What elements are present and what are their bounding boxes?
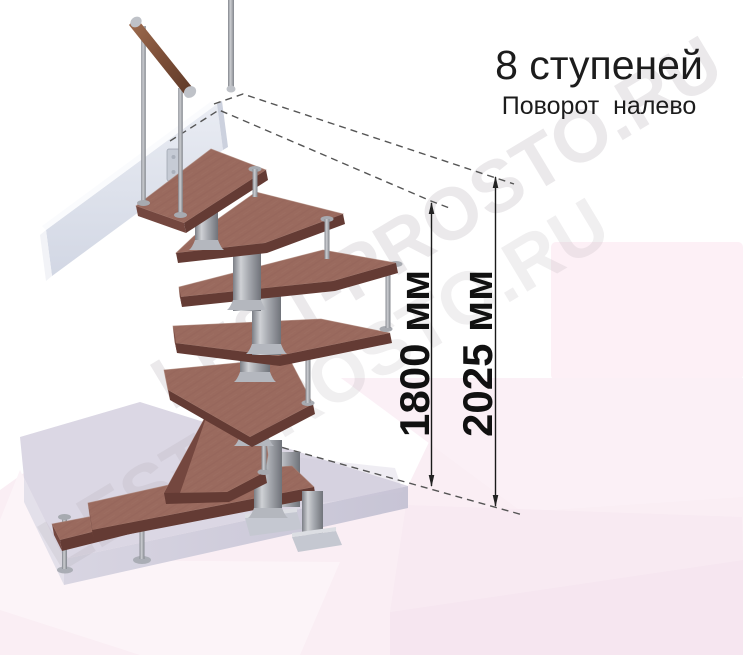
svg-text:Поворот налево: Поворот налево <box>502 92 696 120</box>
svg-text:1800 мм: 1800 мм <box>391 270 438 437</box>
svg-text:8 ступеней: 8 ступеней <box>495 42 703 88</box>
svg-text:2025 мм: 2025 мм <box>454 270 501 437</box>
